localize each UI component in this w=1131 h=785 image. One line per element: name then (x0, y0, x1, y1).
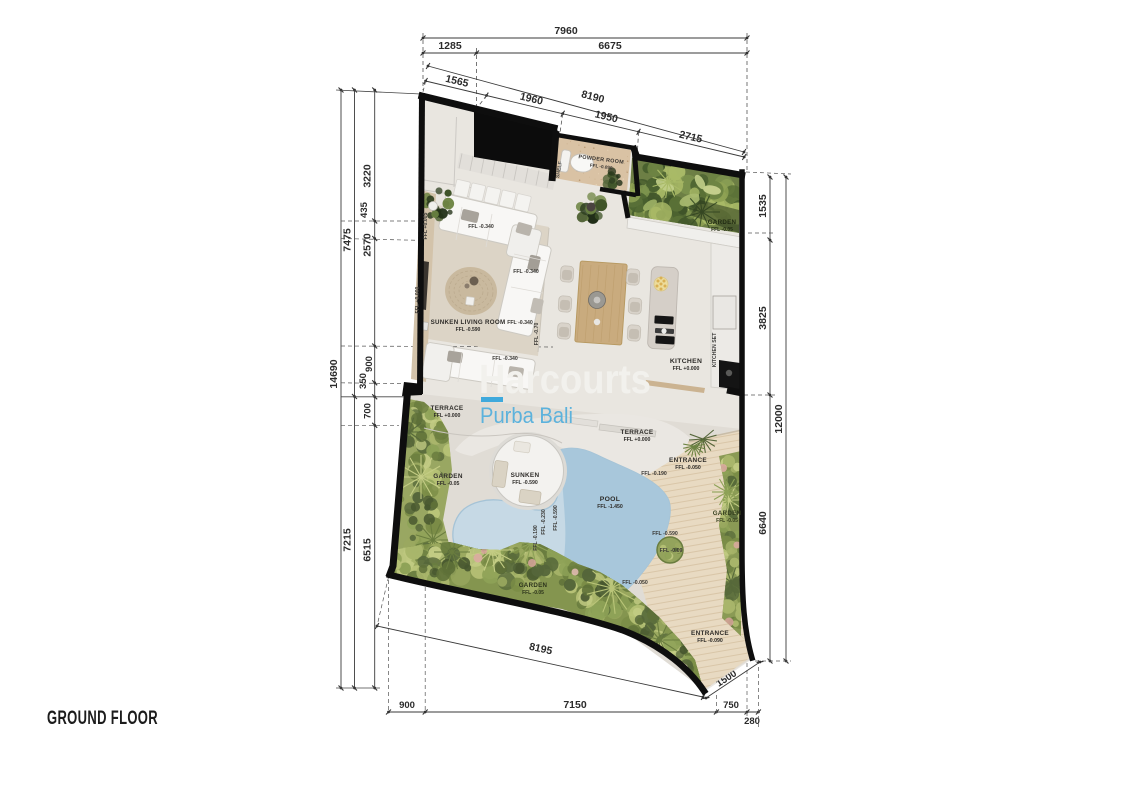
svg-text:FFL -0.590: FFL -0.590 (652, 531, 678, 537)
svg-text:FFL -0.340: FFL -0.340 (507, 320, 533, 326)
svg-text:350: 350 (358, 373, 369, 389)
svg-text:1285: 1285 (438, 40, 462, 52)
svg-text:Harcourts: Harcourts (479, 356, 651, 402)
svg-text:900: 900 (364, 356, 375, 372)
svg-text:7960: 7960 (554, 25, 578, 37)
svg-text:6640: 6640 (757, 511, 769, 535)
svg-text:KITCHEN: KITCHEN (670, 358, 702, 365)
svg-text:1535: 1535 (757, 194, 769, 218)
svg-text:FFL -0.590: FFL -0.590 (456, 327, 481, 333)
svg-text:FFL +0.000: FFL +0.000 (415, 286, 421, 313)
svg-text:3825: 3825 (757, 306, 769, 330)
svg-text:TERRACE: TERRACE (431, 405, 464, 412)
svg-text:750: 750 (723, 700, 739, 711)
svg-text:7150: 7150 (563, 699, 587, 711)
svg-text:FFL -0.590: FFL -0.590 (512, 480, 538, 486)
svg-text:7475: 7475 (342, 228, 354, 252)
svg-text:2570: 2570 (362, 233, 374, 257)
svg-text:SUNKEN LIVING ROOM: SUNKEN LIVING ROOM (431, 319, 506, 326)
svg-text:FFL -0.590: FFL -0.590 (553, 505, 559, 531)
svg-text:FFL +0.005: FFL +0.005 (423, 212, 429, 239)
svg-text:GARDEN: GARDEN (708, 219, 737, 226)
svg-text:FFL -0.340: FFL -0.340 (468, 224, 494, 230)
svg-text:14690: 14690 (328, 359, 340, 388)
svg-text:435: 435 (359, 201, 370, 218)
svg-text:KITCHEN SET: KITCHEN SET (712, 332, 718, 367)
svg-text:FFL -0.050: FFL -0.050 (675, 465, 701, 471)
svg-text:FFL -0.05: FFL -0.05 (437, 481, 460, 487)
svg-text:POOL: POOL (600, 496, 620, 503)
svg-text:900: 900 (399, 700, 415, 711)
svg-text:FFL +0.000: FFL +0.000 (673, 366, 700, 372)
svg-text:FFL -0.190: FFL -0.190 (533, 525, 539, 551)
svg-text:FFL +0.000: FFL +0.000 (624, 437, 651, 443)
svg-text:7215: 7215 (342, 528, 354, 552)
svg-text:6675: 6675 (598, 40, 622, 52)
svg-text:GARDEN: GARDEN (519, 582, 548, 589)
svg-text:FFL -0.340: FFL -0.340 (492, 356, 518, 362)
svg-text:SUNKEN: SUNKEN (511, 472, 540, 479)
svg-text:FFL -0.70: FFL -0.70 (534, 323, 540, 346)
svg-text:FFL +0.000: FFL +0.000 (434, 413, 461, 419)
svg-text:FFL -1.450: FFL -1.450 (597, 504, 623, 510)
svg-text:FFL -0.230: FFL -0.230 (541, 509, 547, 535)
svg-text:GARDEN: GARDEN (713, 510, 742, 517)
svg-text:GARDEN: GARDEN (433, 473, 463, 480)
svg-text:ENTRANCE: ENTRANCE (691, 630, 729, 637)
svg-text:GROUND FLOOR: GROUND FLOOR (47, 708, 158, 729)
svg-text:FFL -0.05: FFL -0.05 (711, 227, 733, 233)
svg-text:3220: 3220 (362, 164, 374, 188)
svg-text:ENTRANCE: ENTRANCE (669, 457, 707, 464)
svg-text:FFL -0.090: FFL -0.090 (697, 638, 723, 644)
svg-text:280: 280 (744, 716, 760, 727)
svg-text:FFL -0.09: FFL -0.09 (660, 548, 683, 554)
svg-text:12000: 12000 (773, 404, 785, 433)
svg-text:TERRACE: TERRACE (621, 429, 654, 436)
svg-text:FFL -0.05: FFL -0.05 (522, 590, 544, 596)
svg-text:FFL -0.05: FFL -0.05 (716, 518, 738, 524)
svg-text:FFL -0.190: FFL -0.190 (641, 471, 667, 477)
svg-text:Purba Bali: Purba Bali (480, 403, 573, 428)
svg-text:FFL -0.050: FFL -0.050 (622, 580, 648, 586)
svg-text:700: 700 (363, 403, 374, 419)
svg-text:6515: 6515 (362, 538, 374, 562)
svg-text:FFL -0.340: FFL -0.340 (513, 269, 539, 275)
